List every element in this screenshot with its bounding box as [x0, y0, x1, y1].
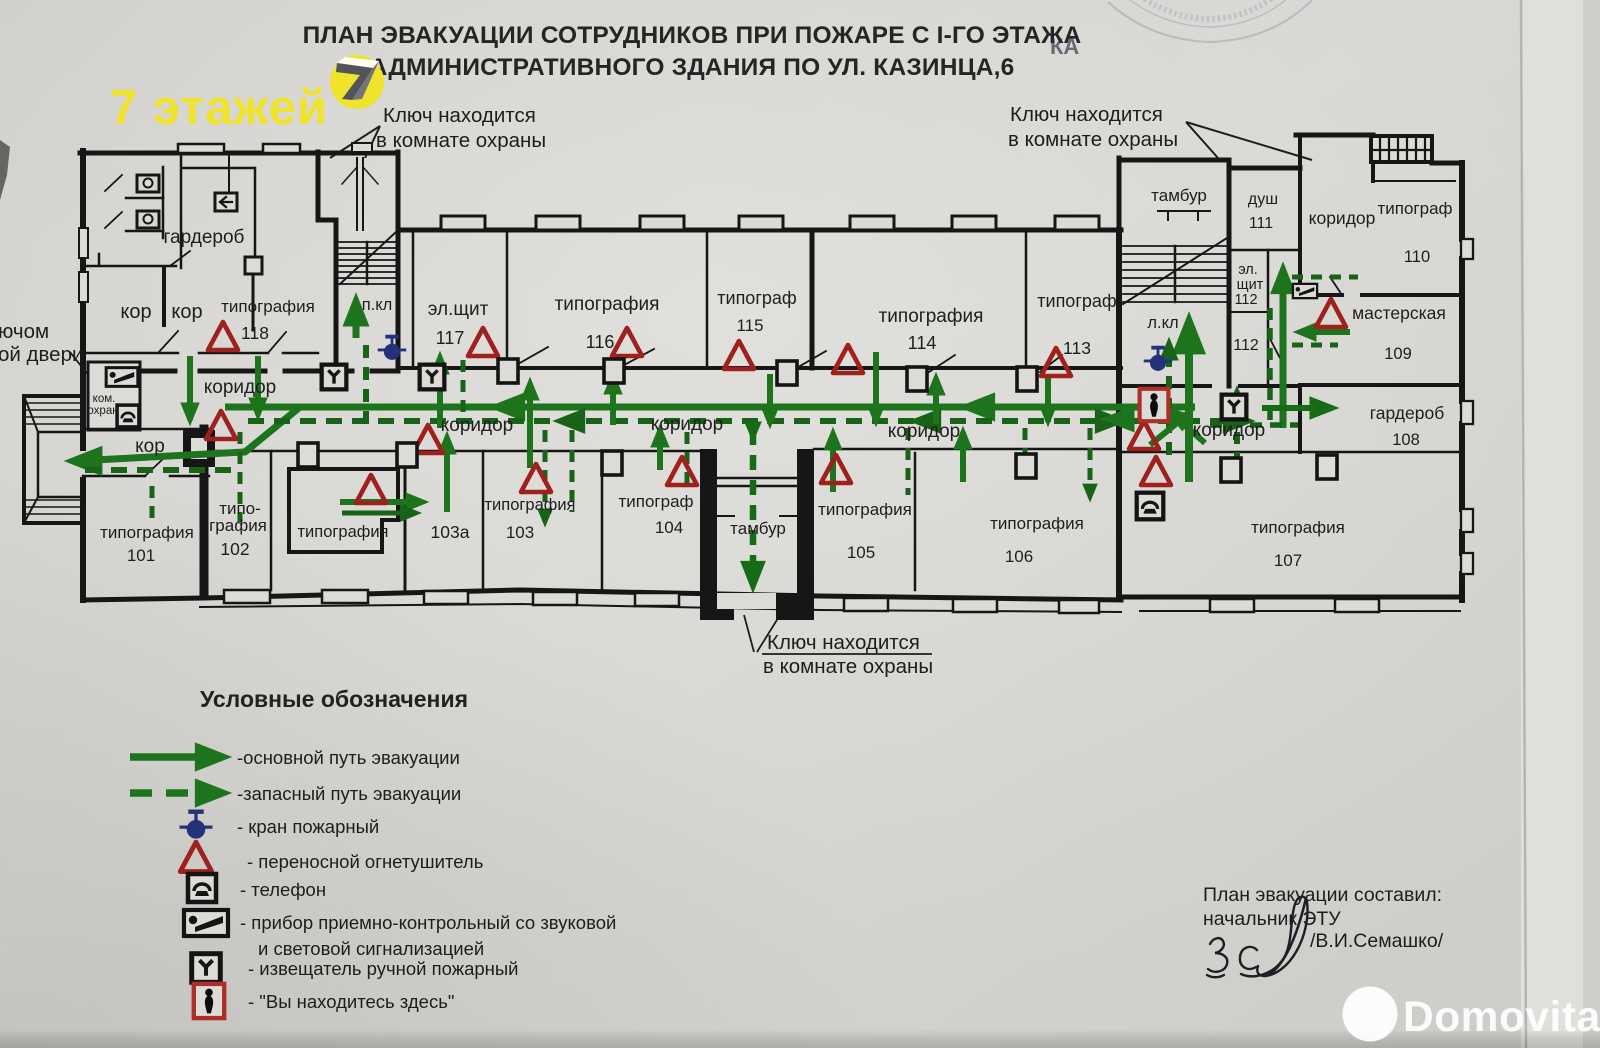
svg-text:охран: охран: [87, 405, 118, 417]
svg-text:Ключ находится: Ключ находится: [767, 631, 920, 654]
svg-text:ПЛАН ЭВАКУАЦИИ СОТРУДНИКОВ ПР: ПЛАН ЭВАКУАЦИИ СОТРУДНИКОВ ПРИ ПОЖАРЕ С …: [303, 22, 1082, 49]
svg-text:106: 106: [1005, 547, 1033, 566]
svg-text:7 этажей: 7 этажей: [110, 81, 328, 135]
svg-text:душ: душ: [1248, 191, 1278, 208]
svg-text:кор: кор: [120, 301, 151, 323]
svg-text:117: 117: [436, 328, 465, 348]
svg-text:коридор: коридор: [888, 421, 961, 442]
svg-text:ком.: ком.: [93, 393, 116, 405]
svg-text:101: 101: [127, 546, 155, 565]
svg-text:-основной путь эвакуации: -основной путь эвакуации: [237, 747, 460, 768]
svg-text:Ключ находится: Ключ находится: [383, 104, 536, 127]
svg-text:112: 112: [1233, 337, 1259, 354]
svg-text:типография: типография: [100, 523, 194, 542]
svg-text:л.кл: л.кл: [1147, 314, 1178, 332]
svg-text:тамбур: тамбур: [1151, 186, 1207, 205]
svg-text:- прибор приемно-контрольный с: - прибор приемно-контрольный со звуковой: [240, 912, 616, 933]
svg-text:114: 114: [908, 333, 937, 353]
svg-text:типография: типография: [221, 297, 315, 316]
svg-text:п.кл: п.кл: [362, 296, 393, 314]
svg-text:начальник ЭТУ: начальник ЭТУ: [1203, 908, 1341, 930]
svg-text:эл.щит: эл.щит: [428, 299, 489, 320]
svg-text:типограф: типограф: [1037, 291, 1117, 311]
svg-text:113: 113: [1063, 338, 1091, 358]
svg-text:112: 112: [1234, 292, 1257, 308]
svg-text:кор: кор: [135, 436, 165, 457]
svg-text:Ключ находится: Ключ находится: [1010, 103, 1163, 126]
svg-text:коридор: коридор: [1193, 420, 1266, 441]
svg-text:типография: типография: [1251, 518, 1345, 537]
svg-text:110: 110: [1404, 248, 1430, 266]
svg-text:и световой сигнализацией: и световой сигнализацией: [258, 938, 484, 959]
svg-text:гардероб: гардероб: [164, 227, 245, 248]
svg-text:116: 116: [586, 332, 615, 352]
svg-text:мастерская: мастерская: [1352, 303, 1446, 323]
svg-text:- телефон: - телефон: [240, 879, 326, 900]
svg-text:в комнате охраны: в комнате охраны: [763, 655, 933, 678]
svg-text:коридор: коридор: [651, 414, 724, 435]
svg-text:115: 115: [736, 316, 763, 335]
svg-text:в комнате охраны: в комнате охраны: [376, 129, 546, 152]
svg-text:типограф: типограф: [1377, 199, 1452, 218]
svg-text:коридор: коридор: [441, 415, 514, 436]
svg-text:107: 107: [1274, 551, 1302, 570]
svg-text:типография: типография: [555, 294, 660, 315]
svg-text:План эвакуации составил:: План эвакуации составил:: [1203, 884, 1442, 906]
svg-text:типограф: типограф: [717, 288, 797, 308]
svg-text:графия: графия: [209, 516, 267, 535]
svg-text:тамбур: тамбур: [730, 519, 786, 538]
svg-text:типография: типография: [879, 306, 984, 327]
svg-text:102: 102: [220, 539, 249, 559]
svg-text:109: 109: [1384, 345, 1412, 363]
svg-text:103а: 103а: [431, 522, 470, 542]
svg-text:в комнате охраны: в комнате охраны: [1008, 128, 1178, 151]
svg-text:коридор: коридор: [1309, 208, 1376, 228]
svg-text:/В.И.Семашко/: /В.И.Семашко/: [1310, 930, 1444, 952]
svg-text:Domovita: Domovita: [1403, 994, 1600, 1041]
svg-text:104: 104: [655, 518, 683, 537]
svg-text:Условные обозначения: Условные обозначения: [200, 686, 468, 712]
svg-text:типограф: типограф: [618, 492, 693, 511]
svg-text:-запасный путь эвакуации: -запасный путь эвакуации: [237, 783, 461, 804]
svg-text:118: 118: [241, 323, 269, 343]
svg-text:кор: кор: [171, 301, 202, 323]
svg-text:103: 103: [506, 523, 534, 542]
svg-text:гардероб: гардероб: [1370, 403, 1445, 423]
svg-text:111: 111: [1249, 215, 1273, 232]
svg-text:щит: щит: [1237, 277, 1264, 293]
svg-text:- "Вы находитесь здесь": - "Вы находитесь здесь": [248, 991, 454, 1012]
svg-text:типография: типография: [298, 523, 389, 541]
svg-text:АДМИНИСТРАТИВНОГО ЗДАНИЯ ПО УЛ: АДМИНИСТРАТИВНОГО ЗДАНИЯ ПО УЛ. КАЗИНЦА,…: [370, 54, 1015, 81]
svg-text:108: 108: [1392, 431, 1420, 449]
svg-text:типография: типография: [990, 514, 1084, 533]
svg-text:ючом: ючом: [0, 320, 49, 343]
svg-text:- кран пожарный: - кран пожарный: [237, 816, 379, 837]
svg-text:эл.: эл.: [1238, 262, 1258, 278]
svg-text:- извещатель ручной пожарный: - извещатель ручной пожарный: [248, 958, 519, 979]
svg-text:типография: типография: [485, 496, 576, 514]
svg-text:коридор: коридор: [204, 377, 277, 398]
svg-text:- переносной огнетушитель: - переносной огнетушитель: [247, 851, 483, 872]
svg-text:типография: типография: [818, 500, 912, 519]
svg-text:105: 105: [847, 543, 875, 562]
